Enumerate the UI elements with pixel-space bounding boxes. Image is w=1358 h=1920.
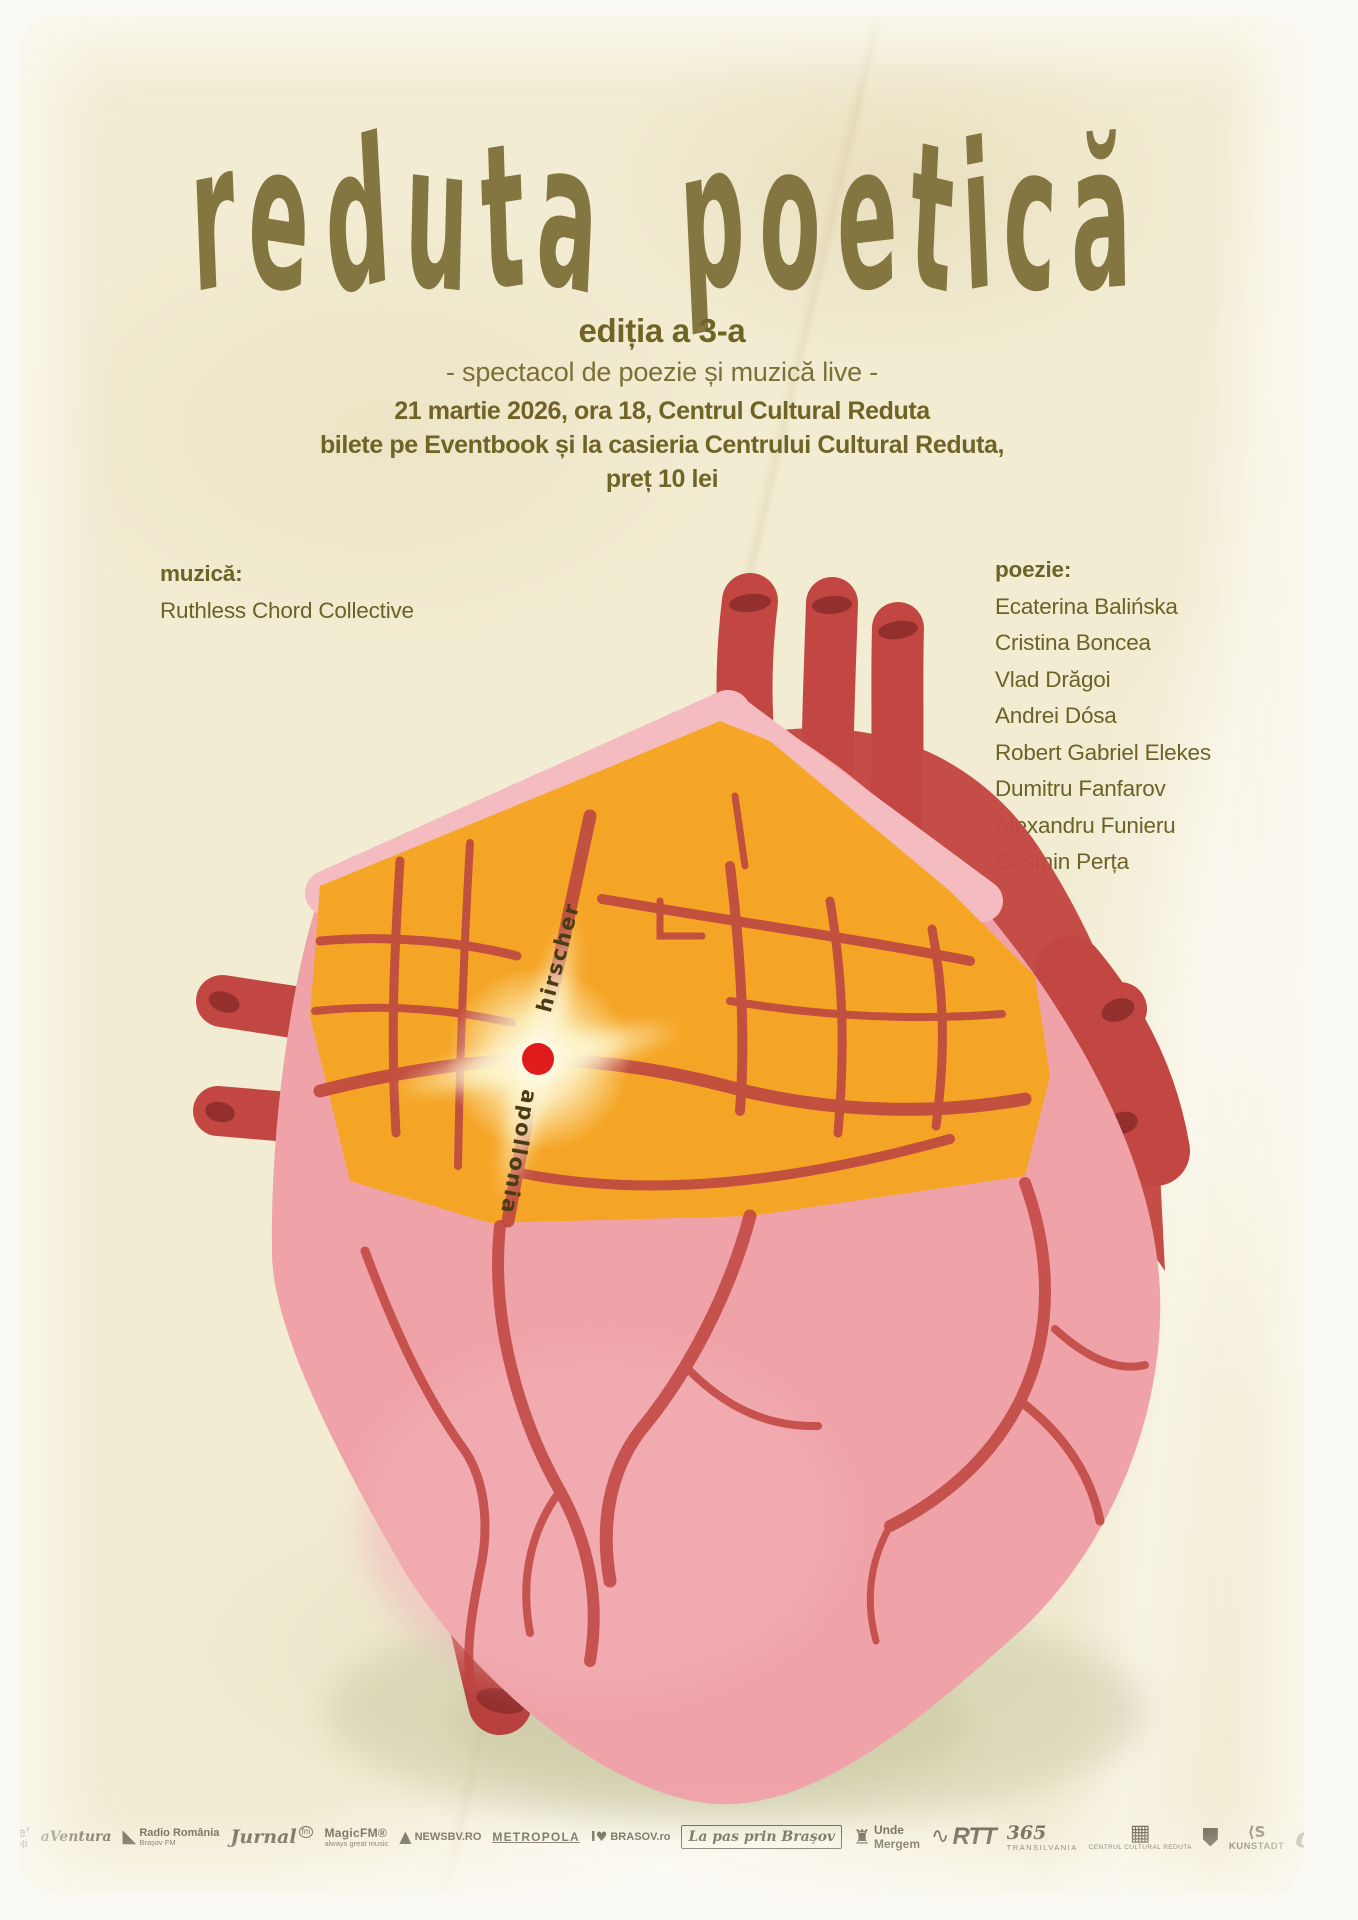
reduta-building-logo: ▦CENTRUL CULTURAL REDUTA bbox=[1089, 1823, 1192, 1852]
title-letter: i bbox=[958, 116, 996, 323]
coat-of-arms-logo bbox=[1203, 1828, 1218, 1847]
metropola-logo-label: METROPOLA bbox=[492, 1830, 579, 1844]
unde-mergem-logo: ♜UndeMergem bbox=[853, 1823, 920, 1851]
unde-mergem-logo-icon: ♜ bbox=[853, 1827, 871, 1847]
magic-fm-logo-subtext: always great music bbox=[324, 1840, 388, 1848]
zile-nopti-logo-label: zile’ bbox=[20, 1824, 30, 1840]
title-letter: t bbox=[905, 114, 957, 325]
stylized-a-logo-icon: ɑ bbox=[1295, 1821, 1304, 1854]
title-letter: e bbox=[245, 114, 312, 325]
title-letter: p bbox=[675, 111, 748, 327]
poster-title: reduta poetică bbox=[20, 114, 1304, 324]
title-letter: c bbox=[1000, 114, 1059, 323]
jurnal-fm-logo-subtext: fm bbox=[299, 1826, 314, 1838]
365-transilvania-logo-subtext: TRANSILVANIA bbox=[1007, 1844, 1078, 1852]
price-info: preț 10 lei bbox=[20, 465, 1304, 494]
title-letter: u bbox=[402, 115, 470, 324]
title-letter: e bbox=[834, 115, 899, 323]
jurnal-fm-logo: Jurnalfm bbox=[230, 1826, 313, 1848]
newsbv-logo: ▲NEWSBV.RO bbox=[399, 1829, 481, 1845]
ticket-info: bilete pe Eventbook și la casieria Centr… bbox=[20, 431, 1304, 460]
365-transilvania-logo-label: 365 bbox=[1007, 1822, 1078, 1844]
map-location-dot bbox=[522, 1043, 554, 1075]
rtt-logo-label: RTT bbox=[952, 1823, 995, 1851]
ilovebrasov-logo: I♥BRASOV.ro bbox=[591, 1830, 671, 1845]
title-letter: ă bbox=[1069, 116, 1133, 322]
title-letter: a bbox=[533, 112, 602, 327]
zile-nopti-logo-subtext: nopți bbox=[20, 1840, 30, 1851]
la-pas-prin-brasov-logo-label: La pas prin Brașov bbox=[688, 1829, 835, 1845]
radio-romania-brasov-logo-subtext: Brașov FM bbox=[139, 1839, 219, 1847]
zile-nopti-logo: ★zile’nopți bbox=[20, 1820, 30, 1854]
kunstadt-logo-icon: ⟨S bbox=[1248, 1823, 1266, 1841]
rtt-logo-icon: ∿ bbox=[931, 1826, 949, 1848]
title-letter: r bbox=[187, 114, 239, 323]
aventura-logo: aVentura bbox=[41, 1829, 112, 1845]
radio-romania-brasov-logo: ◣Radio RomâniaBrașov FM bbox=[122, 1827, 219, 1847]
title-letter: d bbox=[319, 110, 394, 328]
stylized-a-logo: ɑ bbox=[1295, 1821, 1304, 1854]
kunstadt-logo: ⟨SKUNSTADT bbox=[1229, 1823, 1285, 1852]
magic-fm-logo: MagicFM®always great music bbox=[324, 1826, 388, 1848]
tagline: - spectacol de poezie și muzică live - bbox=[20, 357, 1304, 388]
sponsor-logos-strip: ◉◈★zile’nopțiaVentura◣Radio RomâniaBrașo… bbox=[50, 1806, 1274, 1868]
ilovebrasov-logo-label: BRASOV.ro bbox=[610, 1831, 670, 1843]
shield-icon bbox=[1203, 1828, 1218, 1847]
title-letter: t bbox=[479, 115, 528, 323]
unde-mergem-logo-label: Unde bbox=[874, 1823, 920, 1837]
newsbv-logo-icon: ▲ bbox=[399, 1829, 411, 1845]
heart-map-svg: hirscher apollonia bbox=[170, 571, 1200, 1841]
rtt-logo: ∿RTT bbox=[931, 1823, 996, 1851]
365-transilvania-logo: 365TRANSILVANIA bbox=[1007, 1822, 1078, 1852]
reduta-building-logo-icon: ▦ bbox=[1130, 1823, 1151, 1845]
title-letter: o bbox=[756, 113, 825, 326]
kunstadt-logo-label: KUNSTADT bbox=[1229, 1841, 1285, 1852]
ilovebrasov-logo-icon: I♥ bbox=[591, 1830, 608, 1845]
la-pas-prin-brasov-logo: La pas prin Brașov bbox=[681, 1825, 842, 1849]
magic-fm-logo-label: MagicFM® bbox=[324, 1826, 388, 1840]
aventura-logo-label: aVentura bbox=[41, 1829, 112, 1845]
event-date-venue: 21 martie 2026, ora 18, Centrul Cultural… bbox=[20, 397, 1304, 426]
metropola-logo: METROPOLA bbox=[492, 1830, 579, 1844]
poster: reduta poetică ediția a 3-a - spectacol … bbox=[20, 16, 1304, 1894]
heart-map-illustration: hirscher apollonia bbox=[170, 571, 1200, 1841]
jurnal-fm-logo-label: Jurnal bbox=[230, 1826, 296, 1848]
edition-subtitle: ediția a 3-a bbox=[20, 312, 1304, 350]
unde-mergem-logo-subtext: Mergem bbox=[874, 1837, 920, 1851]
newsbv-logo-label: NEWSBV.RO bbox=[415, 1831, 482, 1843]
radio-romania-brasov-logo-icon: ◣ bbox=[122, 1828, 136, 1846]
reduta-building-logo-subtext: CENTRUL CULTURAL REDUTA bbox=[1089, 1845, 1192, 1852]
title-word-gap bbox=[612, 118, 665, 320]
